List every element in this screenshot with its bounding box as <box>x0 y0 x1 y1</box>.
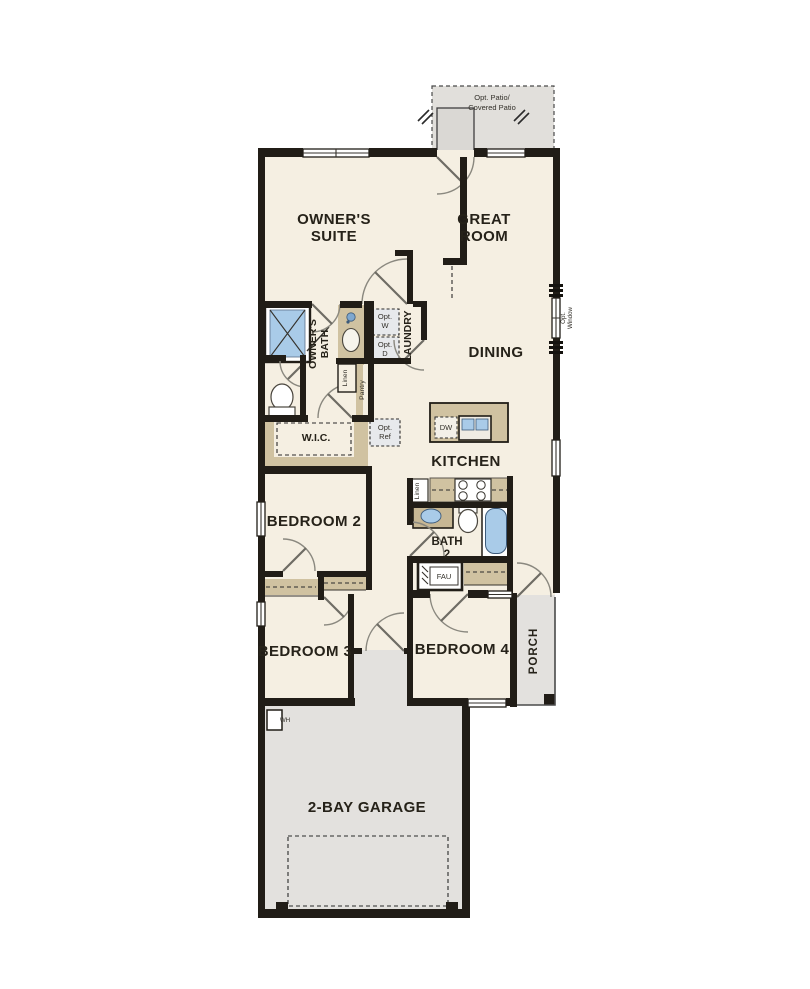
break-mark-icon <box>418 110 433 124</box>
label-bedroom2: BEDROOM 2 <box>267 513 361 530</box>
porch-post <box>544 694 555 705</box>
floor-plan-svg: Opt. Patio/ Covered Patio OWNER'S SUITE … <box>0 0 810 989</box>
wall-segment <box>507 476 513 597</box>
sink-basin-left <box>462 419 474 430</box>
wall-segment <box>369 148 437 157</box>
vanity-sink-icon <box>343 329 360 352</box>
label-bedroom4: BEDROOM 4 <box>415 641 510 658</box>
wall-segment <box>258 909 470 918</box>
label-opt-window-1: Opt. <box>560 312 567 324</box>
wall-segment <box>421 307 427 340</box>
bathtub-icon <box>486 509 507 554</box>
wall-segment <box>262 571 283 577</box>
garage-vestibule-floor <box>352 650 410 705</box>
wall-segment <box>368 363 374 422</box>
wall-segment <box>413 556 512 563</box>
burner-icon <box>477 481 485 489</box>
break-mark-icon <box>549 294 563 297</box>
wall-segment <box>468 590 488 598</box>
wall-segment <box>462 705 470 918</box>
wall-segment <box>443 258 467 265</box>
wall-segment <box>262 301 312 308</box>
label-pantry: Pantry <box>359 380 366 400</box>
wall-segment <box>553 148 560 593</box>
wall-segment <box>407 590 413 706</box>
label-opt-patio-2: Covered Patio <box>468 103 516 112</box>
break-mark-icon <box>549 341 563 344</box>
wall-segment <box>413 301 427 307</box>
label-owners-bath-1: OWNER'S <box>307 319 319 369</box>
label-dishwasher: DW <box>440 423 453 432</box>
label-opt-washer-1: Opt. <box>378 312 392 321</box>
label-opt-dryer-1: Opt. <box>378 340 392 349</box>
wall-segment <box>300 355 306 421</box>
wall-segment <box>258 698 355 706</box>
label-opt-dryer-2: D <box>382 349 388 358</box>
wall-segment <box>407 478 413 525</box>
label-linen: Linen <box>342 369 349 386</box>
patio-entry-vestibule <box>437 108 474 154</box>
burner-icon <box>477 492 485 500</box>
label-linen-kitchen: Linen <box>414 482 421 499</box>
wall-segment <box>407 698 468 706</box>
label-dining: DINING <box>469 344 524 361</box>
burner-icon <box>459 492 467 500</box>
wall-segment <box>262 415 308 422</box>
label-bedroom3: BEDROOM 3 <box>258 643 352 660</box>
label-opt-fridge-2: Ref <box>379 432 392 441</box>
wall-segment <box>474 148 487 157</box>
garage-door-jamb <box>446 902 458 911</box>
label-great-room-2: ROOM <box>460 228 508 245</box>
wall-segment <box>352 415 368 422</box>
faucet-icon <box>347 313 355 321</box>
label-laundry: LAUNDRY <box>402 311 414 362</box>
break-mark-icon <box>549 351 563 354</box>
wall-segment <box>336 358 378 364</box>
wall-segment <box>510 593 517 707</box>
label-fau: FAU <box>437 572 452 581</box>
garage-door-jamb <box>276 902 288 911</box>
label-owners-suite-1: OWNER'S <box>297 211 371 228</box>
label-garage: 2-BAY GARAGE <box>308 799 426 816</box>
label-water-heater: WH <box>280 717 290 724</box>
wall-segment <box>395 250 413 256</box>
wall-segment <box>318 577 324 600</box>
wall-segment <box>258 466 372 474</box>
burner-icon <box>459 481 467 489</box>
sink-basin-right <box>476 419 488 430</box>
break-mark-icon <box>549 284 563 287</box>
wall-segment <box>413 590 430 598</box>
label-opt-patio-1: Opt. Patio/ <box>474 93 510 102</box>
label-owners-bath-2: BATH <box>319 330 331 358</box>
wall-segment <box>407 250 413 304</box>
label-opt-washer-2: W <box>381 321 389 330</box>
label-kitchen: KITCHEN <box>431 453 500 470</box>
toilet-icon <box>271 384 293 410</box>
faucet-dot-icon <box>346 320 349 323</box>
label-wic: W.I.C. <box>302 432 331 444</box>
label-owners-suite-2: SUITE <box>311 228 357 245</box>
wall-segment <box>340 301 362 308</box>
label-bath2-1: BATH <box>431 536 462 548</box>
coat-closet <box>464 563 510 585</box>
wall-segment <box>262 355 286 361</box>
wall-segment <box>460 157 467 263</box>
wall-segment <box>317 571 372 577</box>
bath2-sink-icon <box>421 509 441 523</box>
label-porch: PORCH <box>528 628 540 675</box>
floor-plan-canvas: Opt. Patio/ Covered Patio OWNER'S SUITE … <box>0 0 810 989</box>
break-mark-icon <box>549 289 563 292</box>
break-mark-icon <box>549 346 563 349</box>
label-opt-window-2: Window <box>567 306 574 329</box>
wall-segment <box>407 556 413 598</box>
bath2-toilet-icon <box>459 510 478 533</box>
label-great-room-1: GREAT <box>457 211 510 228</box>
label-opt-fridge-1: Opt. <box>378 423 392 432</box>
wall-segment <box>364 301 374 363</box>
label-bath2-2: 2 <box>444 549 450 561</box>
wall-segment <box>407 502 512 508</box>
